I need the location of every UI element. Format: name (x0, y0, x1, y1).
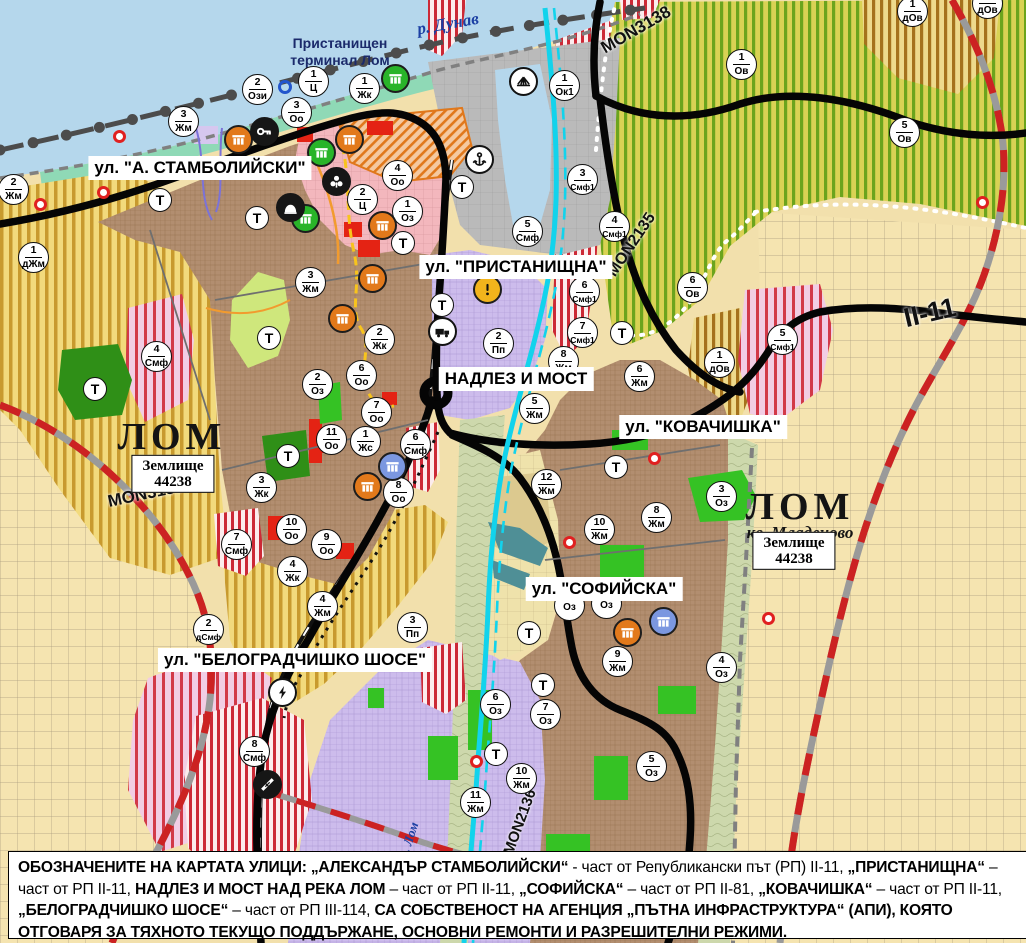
zone-marker: 8Оо (383, 477, 414, 508)
zone-marker: 1дЖм (18, 242, 49, 273)
zone-marker: 4Жк (277, 556, 308, 587)
monument-icon-glyph (332, 308, 353, 329)
zone-marker: 7Смф1 (567, 317, 598, 348)
landholding-code: 44238 (763, 551, 824, 567)
monument-icon-glyph (385, 68, 406, 89)
port-terminal-label: Пристанищентерминал Лом (290, 35, 390, 69)
terminal-line2: терминал Лом (290, 52, 390, 69)
monument-icon (378, 452, 407, 481)
zone-marker: 3Жм (295, 267, 326, 298)
zone-marker: 10Жм (584, 514, 615, 545)
crossing-icon (253, 770, 282, 799)
monument-icon (381, 64, 410, 93)
truck-icon-glyph (432, 321, 453, 342)
monument-icon-glyph (382, 456, 403, 477)
zone-marker: 2Ози (242, 74, 273, 105)
monument-icon (353, 472, 382, 501)
transport-terminal-marker: Т (148, 188, 172, 212)
zone-marker: 6Оо (346, 360, 377, 391)
transport-terminal-marker: Т (276, 444, 300, 468)
zone-marker: 1Ц (298, 66, 329, 97)
zone-marker: 6Смф (400, 429, 431, 460)
truck-icon (428, 317, 457, 346)
road-code-label: II-11 (901, 292, 959, 334)
landholding-box: Землище44238 (131, 455, 214, 493)
street-name-label: НАДЛЕЗ И МОСТ (439, 367, 594, 391)
footnote-segment: – част от РП II-11, (385, 881, 519, 898)
anchor-icon-glyph (469, 149, 490, 170)
transport-terminal-marker: Т (531, 673, 555, 697)
street-name-label: ул. "БЕЛОГРАДЧИШКО ШОСЕ" (158, 648, 432, 672)
road-code-label: MON2136 (500, 787, 539, 857)
zone-marker: 4Смф (141, 341, 172, 372)
monument-icon-glyph (617, 622, 638, 643)
zone-marker: 3Жк (246, 472, 277, 503)
zoning-map-screenshot: 2Жм1дЖм3Жм2Ози1Ц3Оо1Жк4Оо2Ц1Оз4Смф3Жм2Жк… (0, 0, 1026, 943)
road-code-label: MON3138 (597, 2, 674, 58)
zone-marker: 1дОв (972, 0, 1003, 19)
zone-marker: 11Оо (316, 424, 347, 455)
monument-icon (335, 125, 364, 154)
map-annotation-overlay: 2Жм1дЖм3Жм2Ози1Ц3Оо1Жк4Оо2Ц1Оз4Смф3Жм2Жк… (0, 0, 1026, 943)
monument-icon-glyph (339, 129, 360, 150)
map-footnote: ОБОЗНАЧЕНИТЕ НА КАРТАТА УЛИЦИ: „АЛЕКСАНД… (8, 851, 1026, 939)
zone-marker: 8Смф (239, 736, 270, 767)
monument-icon (328, 304, 357, 333)
street-name-label: ул. "СОФИЙСКА" (526, 577, 683, 601)
zone-marker: 5Смф1 (767, 324, 798, 355)
zone-marker: 4Смф1 (599, 211, 630, 242)
zone-marker: 8Жм (641, 502, 672, 533)
zone-marker: 3Пп (397, 612, 428, 643)
zone-marker: 9Жм (602, 646, 633, 677)
red-dot-marker (113, 130, 126, 143)
zone-marker: 5Оз (636, 751, 667, 782)
landholding-title: Землище (142, 458, 203, 474)
zone-marker: 2дСмф (193, 614, 224, 645)
warning-icon-glyph (477, 279, 498, 300)
monument-icon-glyph (653, 611, 674, 632)
zone-marker: 1Жс (350, 426, 381, 457)
zone-marker: 3Оо (281, 97, 312, 128)
red-dot-marker (34, 198, 47, 211)
monument-icon (224, 125, 253, 154)
footnote-segment: „БЕЛОГРАДЧИШКО ШОСЕ“ (18, 902, 228, 919)
footnote-segment: – част от РП II-11, (872, 881, 1002, 898)
transport-terminal-marker: Т (517, 621, 541, 645)
red-dot-marker (470, 755, 483, 768)
anchor-icon (465, 145, 494, 174)
zone-marker: 2Жк (364, 324, 395, 355)
trefoil-icon-glyph (326, 171, 347, 192)
monument-icon (649, 607, 678, 636)
landholding-title: Землище (763, 535, 824, 551)
zone-marker: 9Оо (311, 529, 342, 560)
zone-marker: 6Оз (480, 689, 511, 720)
transport-terminal-marker: Т (610, 321, 634, 345)
zone-marker: 6Смф1 (569, 276, 600, 307)
zone-marker: 1Жк (349, 73, 380, 104)
footnote-segment: „СОФИЙСКА“ (519, 881, 623, 898)
zone-marker: 1Ов (726, 49, 757, 80)
trefoil-icon (322, 167, 351, 196)
zone-marker: 10Жм (506, 763, 537, 794)
zone-marker: 11Жм (460, 787, 491, 818)
monument-icon (613, 618, 642, 647)
transport-terminal-marker: Т (257, 326, 281, 350)
red-dot-marker (762, 612, 775, 625)
zone-marker: 6Жм (624, 361, 655, 392)
lightning-icon (268, 678, 297, 707)
street-name-label: ул. "А. СТАМБОЛИЙСКИ" (88, 156, 311, 180)
key-icon-glyph (254, 121, 275, 142)
zone-marker: 12Жм (531, 469, 562, 500)
zone-marker: 6Ов (677, 272, 708, 303)
monument-icon-glyph (372, 215, 393, 236)
warning-icon (473, 275, 502, 304)
zone-marker: 3Смф1 (567, 164, 598, 195)
river-name-label: р. Дунав (416, 9, 481, 39)
zone-marker: 4Оз (706, 652, 737, 683)
monument-icon-glyph (228, 129, 249, 150)
zone-marker: 1Ок1 (549, 70, 580, 101)
red-dot-marker (563, 536, 576, 549)
monument-icon-glyph (357, 476, 378, 497)
crane-icon-glyph (513, 71, 534, 92)
transport-terminal-marker: Т (484, 742, 508, 766)
dome-icon-glyph (280, 197, 301, 218)
zone-marker: 10Оо (276, 514, 307, 545)
street-name-label: ул. "ПРИСТАНИЩНА" (419, 255, 612, 279)
transport-terminal-marker: Т (450, 175, 474, 199)
footnote-segment: ОБОЗНАЧЕНИТЕ НА КАРТАТА УЛИЦИ: „АЛЕКСАНД… (18, 859, 568, 876)
footnote-segment: „ПРИСТАНИЩНА“ (847, 859, 984, 876)
zone-marker: 4Оо (382, 160, 413, 191)
transport-terminal-marker: Т (83, 377, 107, 401)
footnote-segment: – част от РП II-81, (623, 881, 758, 898)
zone-marker: 1дОв (897, 0, 928, 27)
zone-marker: 5Смф (512, 216, 543, 247)
zone-marker: 4Жм (307, 591, 338, 622)
zone-marker: 7Оо (361, 397, 392, 428)
landholding-box: Землище44238 (752, 532, 835, 570)
transport-terminal-marker: Т (245, 206, 269, 230)
footnote-segment: „КОВАЧИШКА“ (758, 881, 872, 898)
blue-ring-marker (278, 80, 292, 94)
lightning-icon-glyph (272, 682, 293, 703)
zone-marker: 7Смф (221, 529, 252, 560)
footnote-segment: – част от РП III-114, (228, 902, 374, 919)
terminal-line1: Пристанищен (290, 35, 390, 52)
zone-marker: 5Ов (889, 117, 920, 148)
dome-icon (276, 193, 305, 222)
transport-terminal-marker: Т (430, 293, 454, 317)
crane-icon (509, 67, 538, 96)
monument-icon-glyph (362, 268, 383, 289)
zone-marker: 2Жм (0, 174, 29, 205)
red-dot-marker (97, 186, 110, 199)
transport-terminal-marker: Т (391, 231, 415, 255)
transport-terminal-marker: Т (604, 455, 628, 479)
red-dot-marker (648, 452, 661, 465)
footnote-segment: НАДЛЕЗ И МОСТ НАД РЕКА ЛОМ (135, 881, 385, 898)
street-name-label: ул. "КОВАЧИШКА" (619, 415, 787, 439)
zone-marker: 1дОв (704, 347, 735, 378)
zone-marker: 5Жм (519, 393, 550, 424)
zone-marker: 7Оз (530, 699, 561, 730)
monument-icon-glyph (311, 142, 332, 163)
footnote-segment: - част от Републикански път (РП) II-11, (568, 859, 847, 876)
city-name-label: ЛОМ (118, 415, 227, 459)
monument-icon (368, 211, 397, 240)
landholding-code: 44238 (142, 474, 203, 490)
zone-marker: 2Пп (483, 328, 514, 359)
zone-marker: 2Оз (302, 369, 333, 400)
crossing-icon-glyph (257, 774, 278, 795)
red-dot-marker (976, 196, 989, 209)
zone-marker: 3Жм (168, 106, 199, 137)
monument-icon (358, 264, 387, 293)
zone-marker: 3Оз (706, 481, 737, 512)
zone-marker: 2Ц (347, 184, 378, 215)
key-icon (250, 117, 279, 146)
